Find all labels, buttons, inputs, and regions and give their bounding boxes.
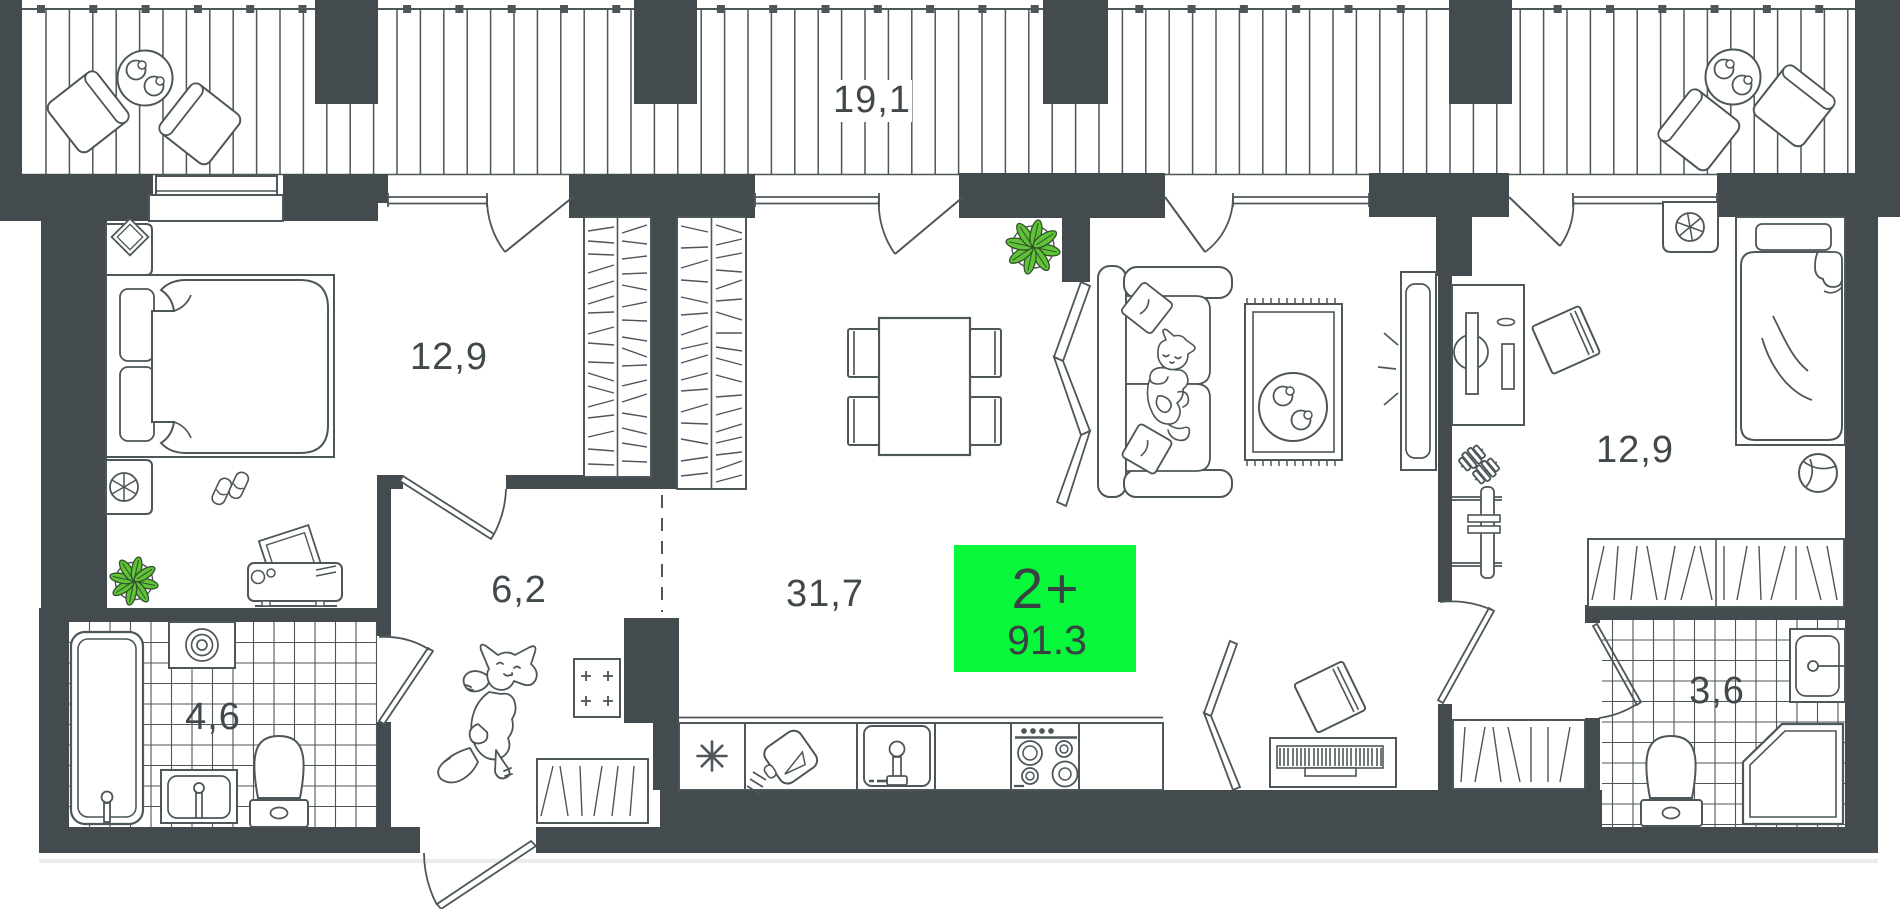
svg-text:3,6: 3,6 [1689,670,1745,712]
svg-text:12,9: 12,9 [1596,429,1674,471]
svg-text:4,6: 4,6 [185,696,241,738]
svg-text:91.3: 91.3 [1007,617,1087,663]
svg-text:12,9: 12,9 [410,336,488,378]
svg-text:19,1: 19,1 [833,79,911,121]
svg-text:2+: 2+ [1012,557,1081,621]
svg-text:6,2: 6,2 [491,569,547,611]
svg-text:31,7: 31,7 [786,573,864,615]
